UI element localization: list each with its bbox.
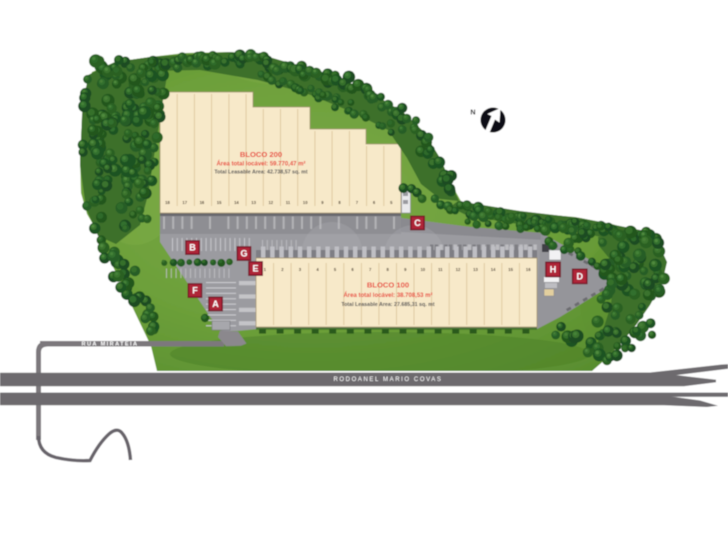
svg-text:A: A xyxy=(212,299,219,309)
svg-text:10: 10 xyxy=(420,267,425,272)
svg-text:Total Leasable Area: 27.685,31: Total Leasable Area: 27.685,31 sq. mt xyxy=(341,302,435,308)
svg-text:17: 17 xyxy=(182,200,187,205)
svg-text:16: 16 xyxy=(526,267,531,272)
svg-text:13: 13 xyxy=(251,200,256,205)
svg-text:14: 14 xyxy=(491,267,496,272)
svg-text:12: 12 xyxy=(268,200,273,205)
svg-text:15: 15 xyxy=(217,200,222,205)
svg-text:F: F xyxy=(192,286,198,296)
svg-text:RUA MIRATEIA: RUA MIRATEIA xyxy=(82,342,139,348)
svg-text:RODOANEL MARIO COVAS: RODOANEL MARIO COVAS xyxy=(333,377,442,383)
svg-text:E: E xyxy=(252,264,258,274)
svg-text:15: 15 xyxy=(508,267,513,272)
svg-text:Área total locável: 38.708,53: Área total locável: 38.708,53 m² xyxy=(343,292,432,299)
svg-text:13: 13 xyxy=(473,267,478,272)
svg-text:14: 14 xyxy=(234,200,239,205)
svg-text:Total Leasable Area: 42.738,57: Total Leasable Area: 42.738,57 sq. mt xyxy=(214,170,308,176)
svg-text:C: C xyxy=(414,218,421,228)
svg-text:D: D xyxy=(576,272,583,282)
svg-text:11: 11 xyxy=(286,200,291,205)
svg-text:N: N xyxy=(470,108,475,117)
svg-text:11: 11 xyxy=(438,267,443,272)
svg-text:BLOCO 100: BLOCO 100 xyxy=(367,281,409,290)
svg-text:BLOCO 200: BLOCO 200 xyxy=(240,150,282,159)
svg-text:Área total locável: 59.770,47: Área total locável: 59.770,47 m² xyxy=(216,161,305,168)
svg-text:18: 18 xyxy=(165,200,170,205)
svg-text:16: 16 xyxy=(200,200,205,205)
svg-text:10: 10 xyxy=(303,200,308,205)
svg-text:H: H xyxy=(550,265,557,275)
svg-text:G: G xyxy=(240,249,247,259)
svg-text:12: 12 xyxy=(456,267,461,272)
svg-text:B: B xyxy=(189,243,196,253)
